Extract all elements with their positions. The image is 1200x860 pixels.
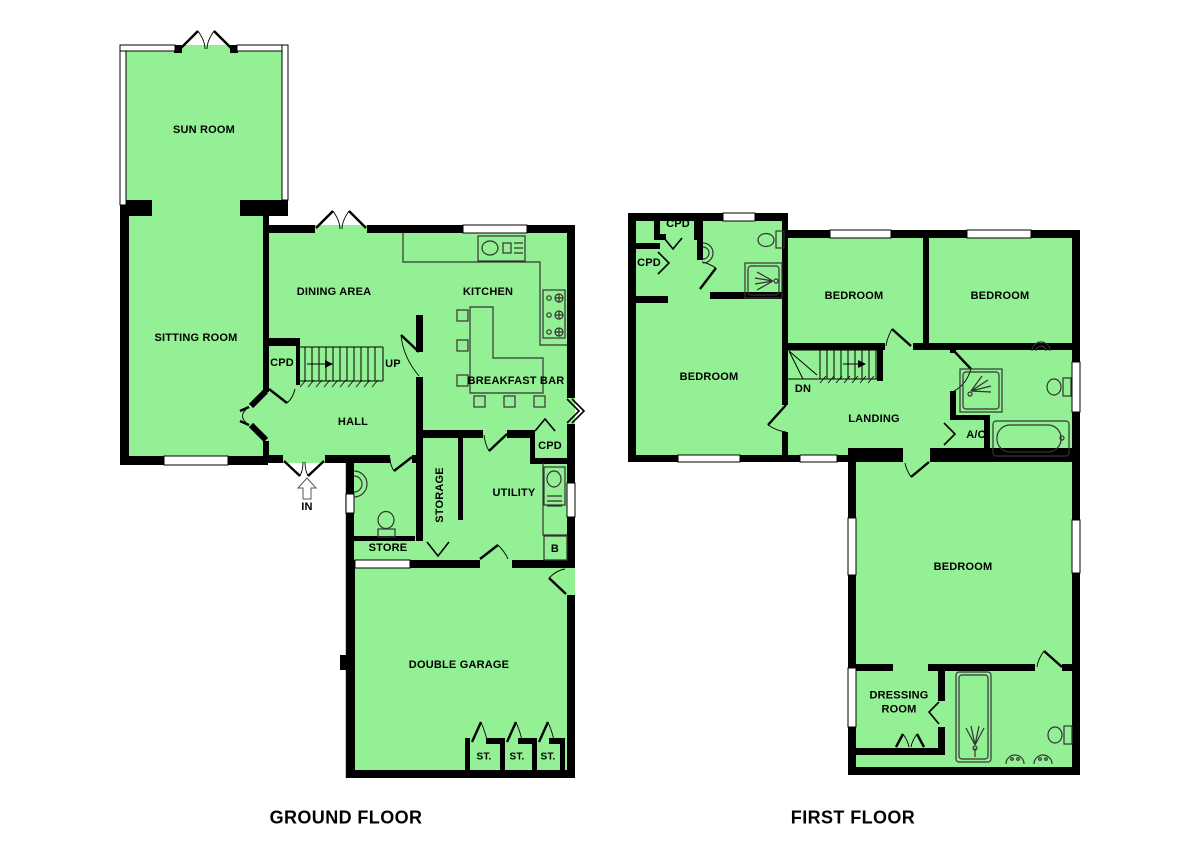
label-double-garage: DOUBLE GARAGE <box>409 659 509 671</box>
label-store: STORE <box>369 542 408 554</box>
label-sitting-room: SITTING ROOM <box>154 332 237 344</box>
label-breakfast-bar: BREAKFAST BAR <box>468 375 565 387</box>
label-utility: UTILITY <box>493 487 536 499</box>
label-bedroom-left: BEDROOM <box>680 371 739 383</box>
ground-floor-plan <box>120 31 584 778</box>
label-dressing-room: DRESSING ROOM <box>856 689 942 718</box>
label-cpd-top: CPD <box>666 218 690 230</box>
entrance-arrow-icon <box>298 478 316 499</box>
label-bedroom-mid: BEDROOM <box>825 290 884 302</box>
label-st-1: ST. <box>476 752 491 763</box>
floorplan-page: SUN ROOM SITTING ROOM DINING AREA KITCHE… <box>0 0 1200 860</box>
label-boiler: B <box>551 543 559 555</box>
label-cpd-utility: CPD <box>538 440 562 452</box>
label-st-2: ST. <box>509 752 524 763</box>
label-dn: DN <box>795 383 811 395</box>
label-up: UP <box>385 358 401 370</box>
label-airing-cupboard: A/C <box>966 429 986 441</box>
label-kitchen: KITCHEN <box>463 286 513 298</box>
label-dining-area: DINING AREA <box>297 286 372 298</box>
label-bedroom-right: BEDROOM <box>971 290 1030 302</box>
label-hall: HALL <box>338 416 368 428</box>
label-sun-room: SUN ROOM <box>173 124 235 136</box>
label-cpd-left: CPD <box>637 257 661 269</box>
label-landing: LANDING <box>848 413 900 425</box>
label-in: IN <box>301 501 312 513</box>
label-storage: STORAGE <box>434 467 446 523</box>
ground-floor-title: GROUND FLOOR <box>270 808 423 829</box>
first-floor-title: FIRST FLOOR <box>791 808 915 829</box>
label-st-3: ST. <box>540 752 555 763</box>
label-bedroom-master: BEDROOM <box>934 561 993 573</box>
label-cpd-stairs: CPD <box>270 357 294 369</box>
